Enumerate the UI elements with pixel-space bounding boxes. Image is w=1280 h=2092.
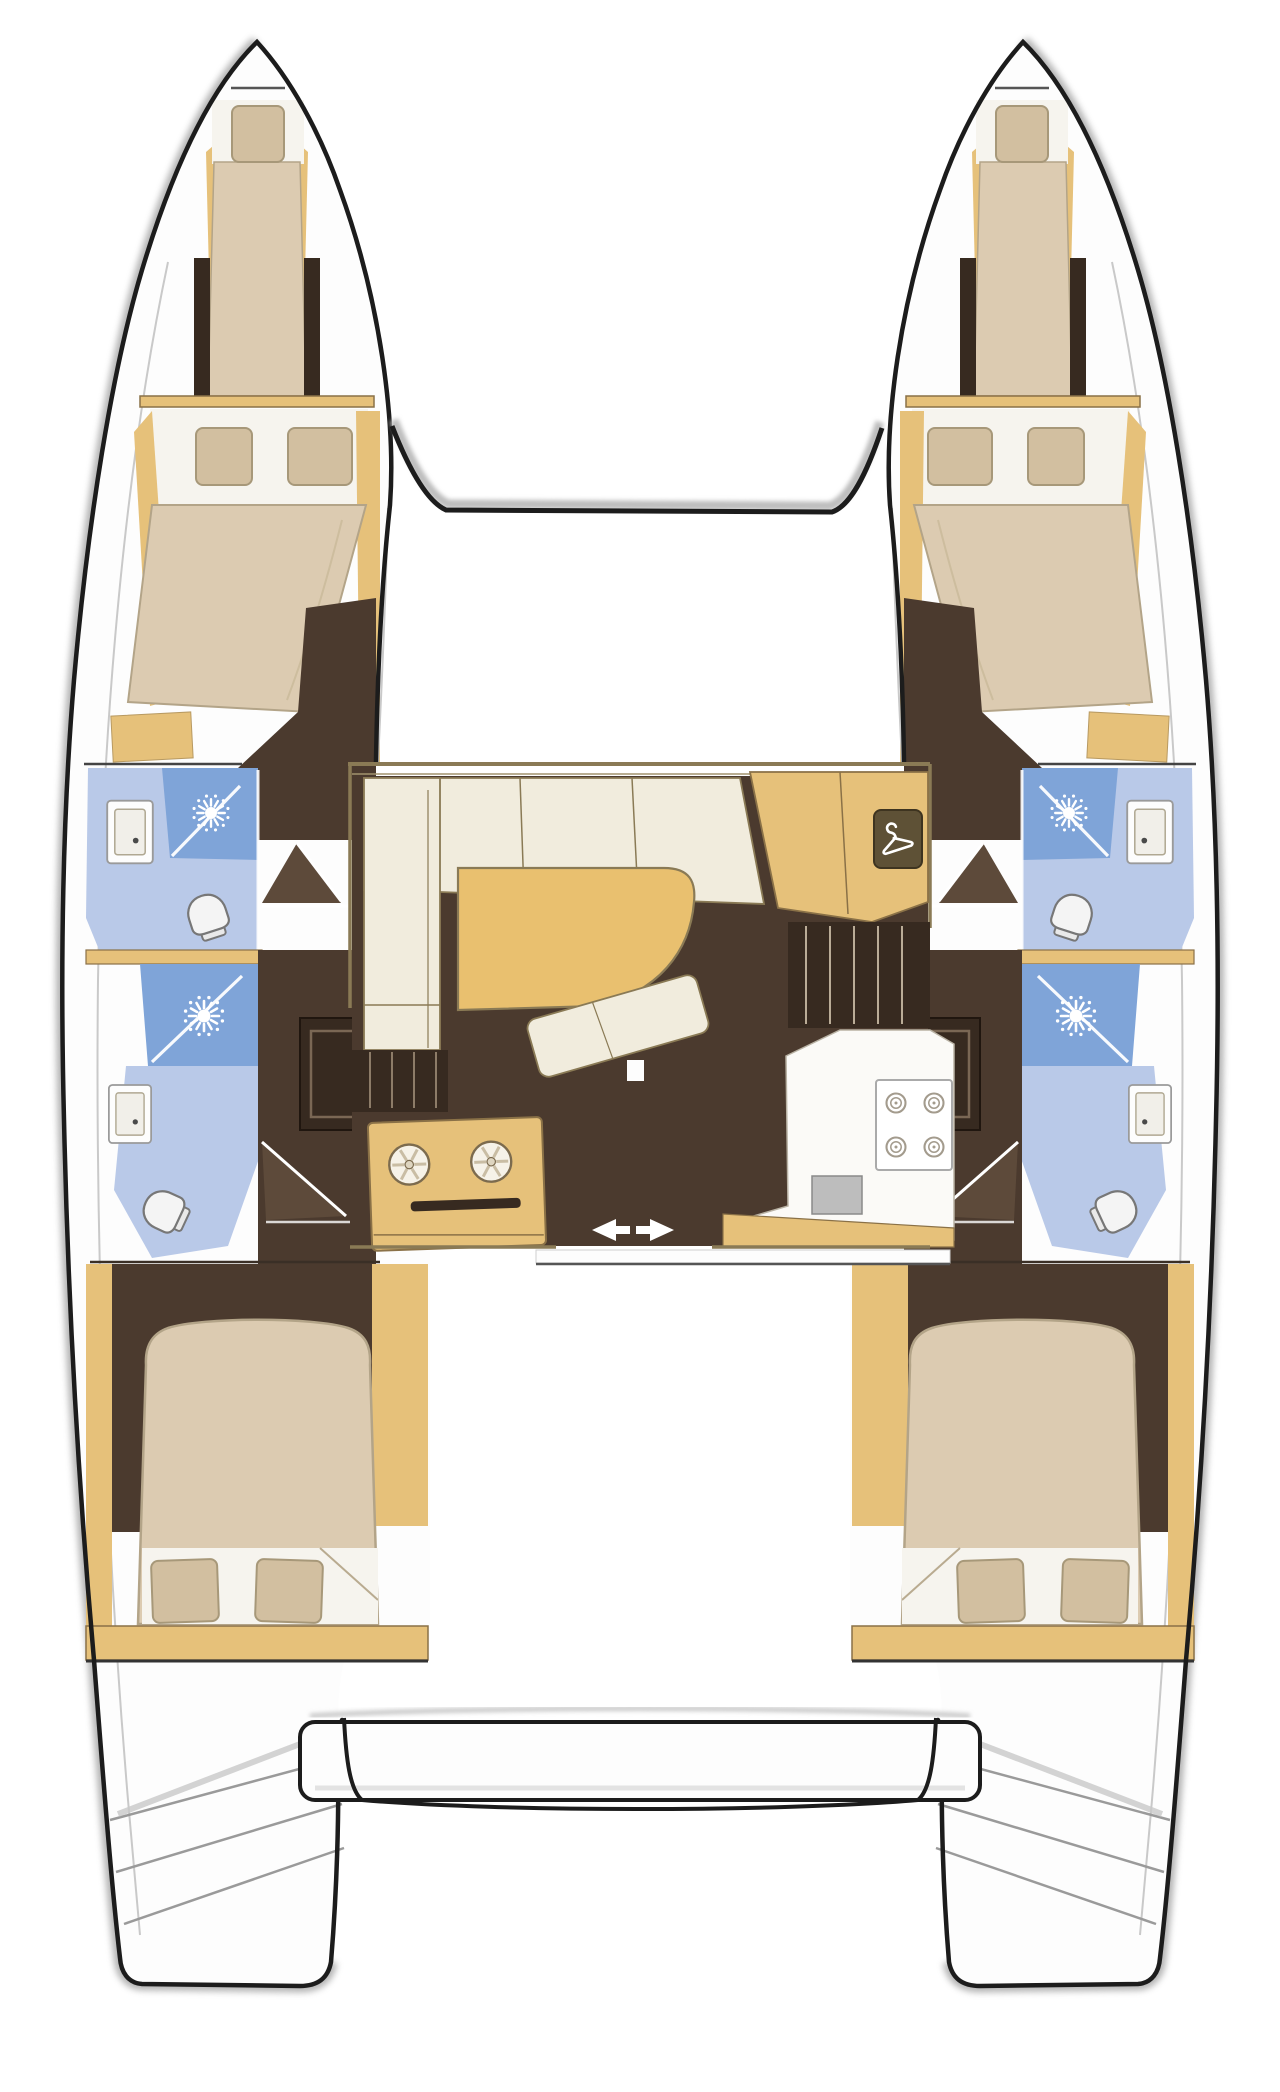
floorplan-svg [0, 0, 1280, 2092]
starboard-forepeak-pillow [996, 106, 1048, 162]
port-forepeak-berth [194, 88, 320, 396]
port-forward-pillow-2 [288, 428, 352, 485]
port-forepeak-locker-left [194, 258, 210, 396]
starboard-forward-pillow-2 [928, 428, 992, 485]
starboard-aft-pillow-2 [957, 1559, 1025, 1623]
burner-icon-2 [925, 1094, 944, 1113]
starboard-forepeak-berth [960, 88, 1086, 396]
port-forepeak-locker-right [304, 258, 320, 396]
port-forward-bed-step [111, 712, 193, 762]
galley-sink-icon-1 [389, 1144, 430, 1185]
starboard-forepeak-locker-right [960, 258, 976, 396]
starboard-heads-divider [1018, 950, 1194, 964]
port-forward-sink-icon [107, 801, 153, 864]
galley-sink-unit [368, 1117, 546, 1251]
starboard-forward-pillow-1 [1028, 428, 1084, 485]
crossbeam-shadow [394, 420, 880, 506]
cockpit-bench-shadow [310, 1709, 970, 1717]
sliding-door-sill [536, 1250, 950, 1263]
burner-icon-3 [887, 1138, 906, 1157]
port-aft-cabin-rail-inboard [372, 1264, 428, 1526]
port-aft-sink-icon [109, 1085, 151, 1143]
starboard-aft-pillow-1 [1061, 1559, 1129, 1623]
starboard-aft-cabin-rail-inboard [852, 1264, 908, 1526]
floorplan-page: Catamaran interior layout floor plan (to… [0, 0, 1280, 2092]
port-forepeak-mattress [208, 162, 306, 396]
starboard-cabin-divider [906, 396, 1140, 407]
port-heads-divider [86, 950, 262, 964]
port-aft-cabin-sill [86, 1626, 428, 1660]
starboard-aft-shower-icon [1056, 996, 1096, 1036]
port-aft-pillow-2 [255, 1559, 323, 1623]
mast-step [627, 1060, 644, 1081]
starboard-forepeak-locker-left [1070, 258, 1086, 396]
cockpit [300, 1709, 980, 1810]
port-aft-pillow-1 [151, 1559, 219, 1623]
crossbeam [392, 426, 882, 512]
port-forward-shower-icon [193, 795, 230, 832]
port-aft-shower-icon [184, 996, 224, 1036]
galley-sink-icon-2 [471, 1141, 512, 1182]
burner-icon-1 [887, 1094, 906, 1113]
starboard-forepeak-mattress [974, 162, 1072, 396]
starboard-aft-sink-icon [1129, 1085, 1171, 1143]
port-forward-pillow-1 [196, 428, 252, 485]
starboard-forward-sink-icon [1127, 801, 1173, 864]
saloon [348, 764, 954, 1264]
port-forepeak-pillow [232, 106, 284, 162]
starboard-forward-shower-icon [1051, 795, 1088, 832]
galley-gray-sink [812, 1176, 862, 1214]
starboard-aft-cabin-sill [852, 1626, 1194, 1660]
starboard-companionway-steps [788, 922, 930, 1028]
stove [876, 1080, 952, 1170]
starboard-forward-bed-step [1087, 712, 1169, 762]
port-cabin-divider [140, 396, 374, 407]
port-companionway-steps [352, 1050, 448, 1112]
burner-icon-4 [925, 1138, 944, 1157]
